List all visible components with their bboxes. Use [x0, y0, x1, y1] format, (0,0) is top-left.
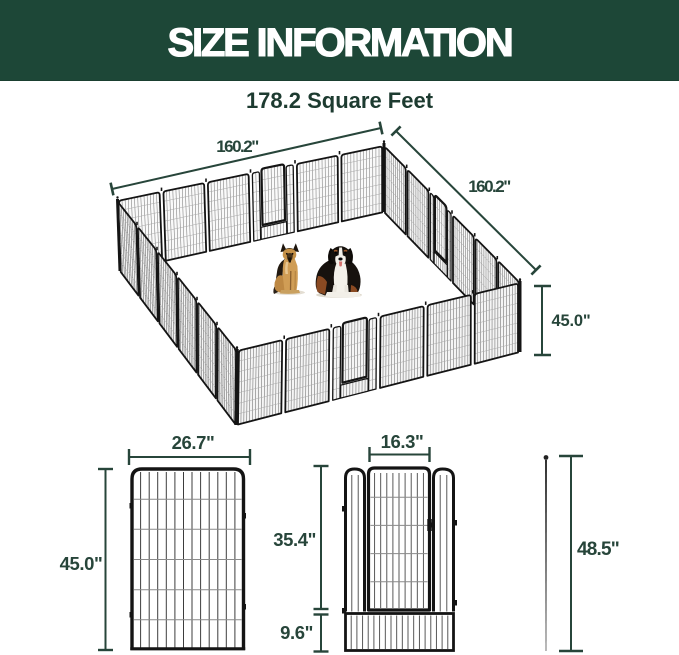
svg-text:9.6": 9.6" [280, 622, 313, 643]
svg-text:35.4": 35.4" [273, 529, 316, 550]
svg-text:45.0": 45.0" [60, 553, 103, 574]
svg-text:16.3": 16.3" [381, 431, 424, 452]
svg-text:160.2": 160.2" [468, 177, 510, 196]
svg-text:26.7": 26.7" [172, 432, 215, 453]
svg-text:48.5": 48.5" [577, 539, 619, 560]
svg-text:45.0": 45.0" [552, 312, 591, 330]
svg-text:160.2": 160.2" [216, 137, 258, 156]
